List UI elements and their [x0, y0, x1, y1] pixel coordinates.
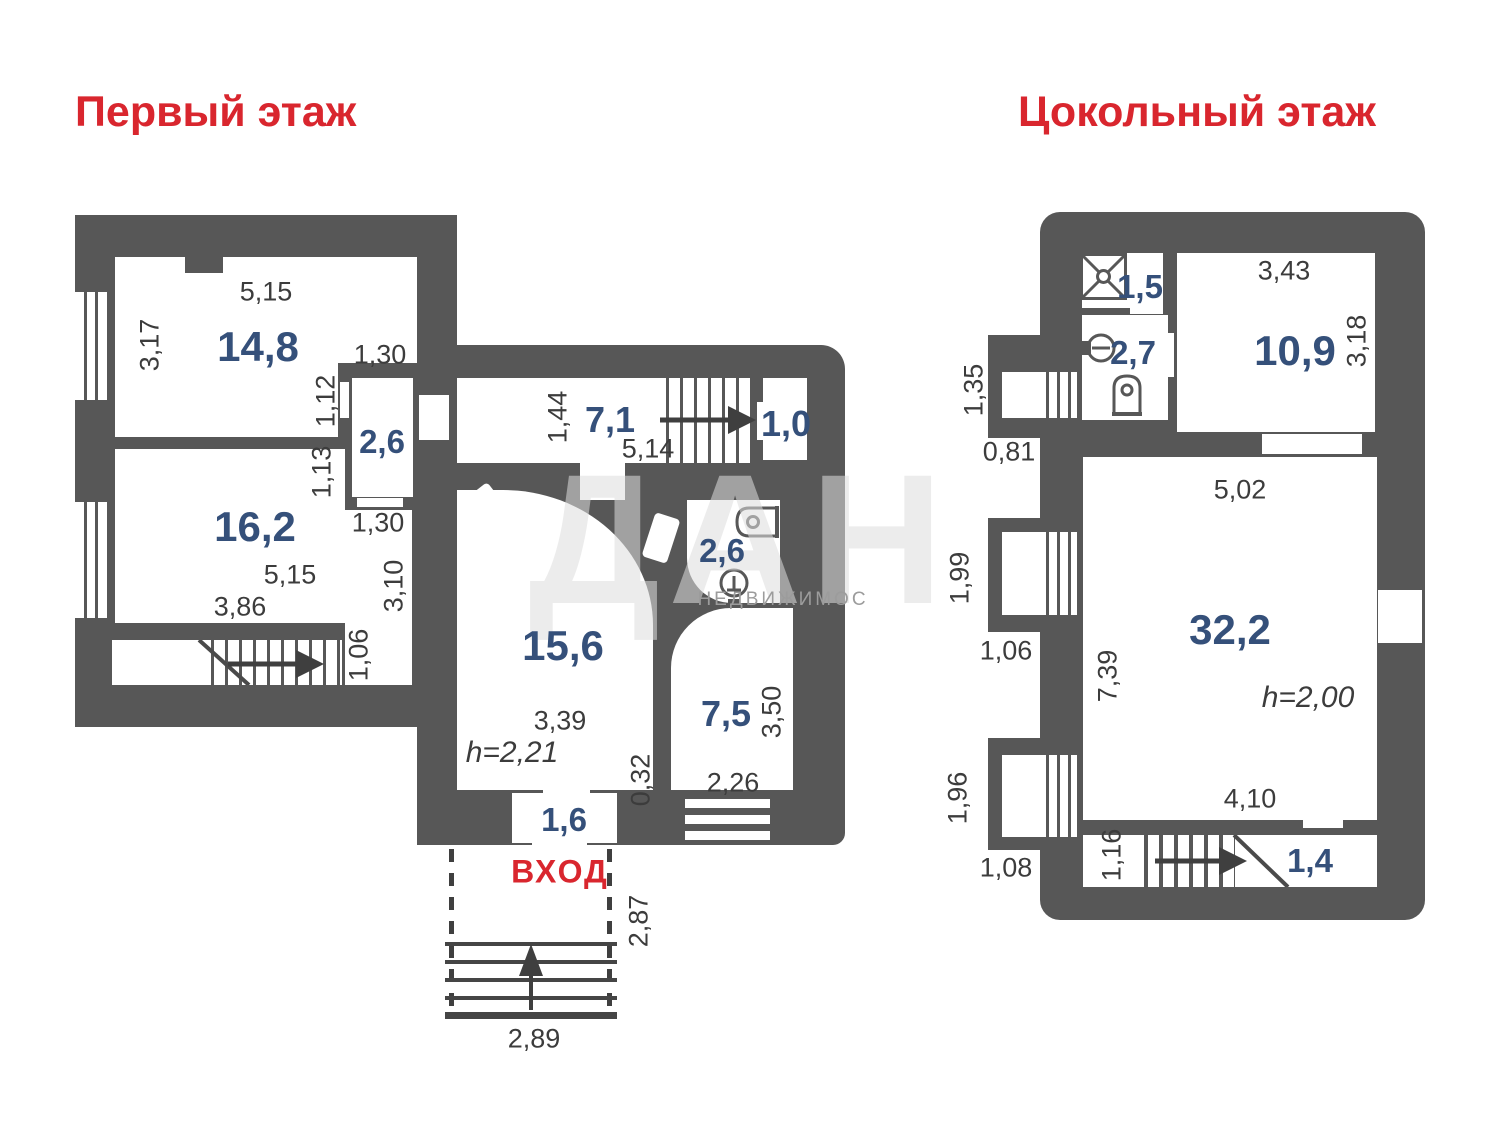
room-area-label: 2,6	[359, 423, 405, 461]
ff-wall-tab	[185, 257, 223, 273]
bs-shower-door-slit	[1130, 306, 1163, 314]
dim-label: 5,02	[1214, 475, 1267, 506]
bs-room-1-4-door-slit	[1303, 819, 1343, 828]
dim-label: 1,30	[354, 340, 407, 371]
bs-room-10-9-door	[1262, 434, 1362, 454]
ff-left-stairs-arrow-icon	[228, 650, 324, 678]
dim-label: 3,43	[1258, 256, 1311, 287]
ff-tambour-slit-top	[543, 786, 590, 794]
dim-label: 1,08	[980, 853, 1033, 884]
dim-label: 3,18	[1342, 315, 1373, 368]
dim-label: 3,10	[379, 560, 410, 613]
ff-entry-arrow-icon	[518, 944, 544, 1010]
watermark-text: НЕДВИЖИМОС	[697, 589, 868, 611]
ff-hall-stairs-arrow-icon	[660, 406, 757, 434]
bs-stairs-arrow-icon	[1155, 847, 1247, 875]
dim-label: 5,14	[622, 434, 675, 465]
dim-label: 1,16	[1097, 829, 1128, 882]
bs-window-3	[1002, 755, 1077, 837]
room-area-label: 16,2	[214, 503, 296, 551]
room-area-label: 7,5	[701, 693, 751, 735]
dim-label: 3,39	[534, 706, 587, 737]
dim-label: 5,15	[264, 560, 317, 591]
bs-window-1	[1002, 372, 1077, 418]
room-area-label: 1,5	[1117, 268, 1163, 306]
dim-label: 1,44	[543, 391, 574, 444]
dim-label: 1,30	[352, 508, 405, 539]
room-area-label: 1,4	[1287, 842, 1333, 880]
ff-vent-bar-3	[685, 831, 770, 840]
dim-label: 3,50	[757, 686, 788, 739]
basement-title: Цокольный этаж	[1018, 88, 1376, 137]
bs-window-2	[1002, 532, 1077, 615]
room-area-label: 32,2	[1189, 606, 1271, 654]
room-area-label: 2,6	[699, 532, 745, 570]
dim-label: 0,32	[626, 754, 657, 807]
dim-label: 3,86	[214, 592, 267, 623]
room-area-label: 15,6	[522, 622, 604, 670]
ff-window-1	[75, 292, 107, 400]
dim-label: 7,39	[1093, 650, 1124, 703]
dim-label: 4,10	[1224, 784, 1277, 815]
room-area-label: 1,6	[541, 801, 587, 839]
dim-label: 3,17	[135, 319, 166, 372]
dim-label: 0,81	[983, 437, 1036, 468]
dim-label: 2,26	[707, 768, 760, 799]
dim-label: 1,12	[311, 375, 342, 428]
dim-label: 1,35	[959, 364, 990, 417]
floorplan-sheet: Первый этаж Цокольный этаж	[0, 0, 1500, 1125]
dim-label: 5,15	[240, 277, 293, 308]
ff-porch-dash-left	[449, 849, 454, 1013]
toilet-icon	[1110, 374, 1144, 418]
ff-window-2	[75, 502, 107, 618]
dim-label: 1,13	[307, 446, 338, 499]
room-area-label: 10,9	[1254, 327, 1336, 375]
entrance-label: ВХОД	[511, 854, 609, 891]
room-area-label: 14,8	[217, 323, 299, 371]
ff-closet-door-slit2	[357, 498, 403, 507]
ceiling-height-label: h=2,21	[466, 736, 559, 770]
dim-label: 1,06	[980, 636, 1033, 667]
ff-tambour-slit-bottom	[532, 843, 587, 851]
room-area-label: 2,7	[1110, 334, 1156, 372]
dim-label: 1,96	[943, 772, 974, 825]
ff-vent-bar-2	[685, 815, 770, 824]
ff-porch-edge	[445, 1012, 617, 1019]
dim-label: 1,99	[945, 552, 976, 605]
dim-label: 2,89	[508, 1024, 561, 1055]
bs-wc-door-slit	[1165, 333, 1174, 377]
ff-wall-niche	[419, 395, 449, 440]
room-area-label: 1,0	[761, 403, 811, 445]
first-floor-title: Первый этаж	[75, 88, 356, 137]
dim-label: 2,87	[624, 895, 655, 948]
dim-label: 1,06	[344, 629, 375, 682]
ceiling-height-label: h=2,00	[1262, 681, 1355, 715]
bs-window-right	[1378, 590, 1422, 643]
ff-vent-bar-1	[685, 799, 770, 808]
